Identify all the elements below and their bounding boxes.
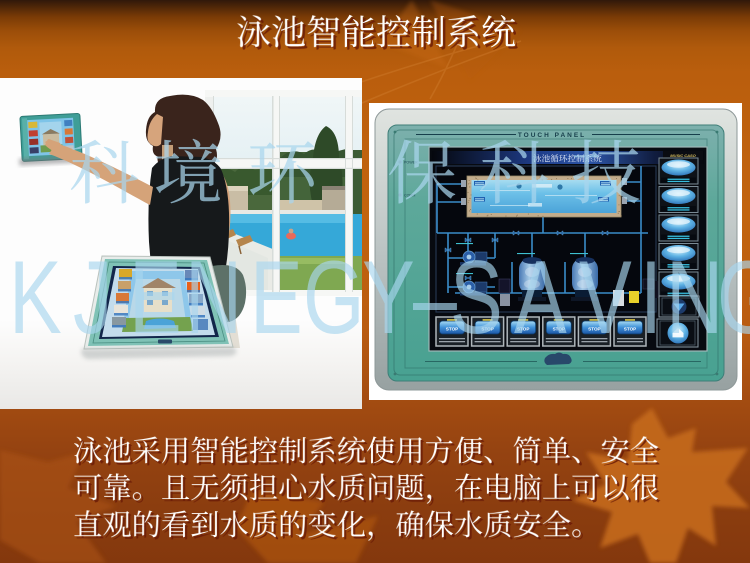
svg-text:Y: Y xyxy=(362,238,415,355)
svg-text:K: K xyxy=(9,238,62,355)
svg-text:G: G xyxy=(717,238,750,355)
svg-text:I: I xyxy=(640,238,662,355)
svg-text:J: J xyxy=(73,238,113,355)
svg-text:TOUCH PANEL: TOUCH PANEL xyxy=(518,132,586,139)
svg-text:MUSIC CASO: MUSIC CASO xyxy=(670,153,696,158)
svg-text:A: A xyxy=(514,238,567,355)
svg-text:N: N xyxy=(666,238,723,355)
svg-text:S: S xyxy=(450,238,503,355)
svg-text:E: E xyxy=(129,238,182,355)
svg-text:N: N xyxy=(185,238,242,355)
svg-text:E: E xyxy=(250,238,303,355)
svg-text:G: G xyxy=(303,238,364,355)
svg-text:V: V xyxy=(579,238,632,355)
